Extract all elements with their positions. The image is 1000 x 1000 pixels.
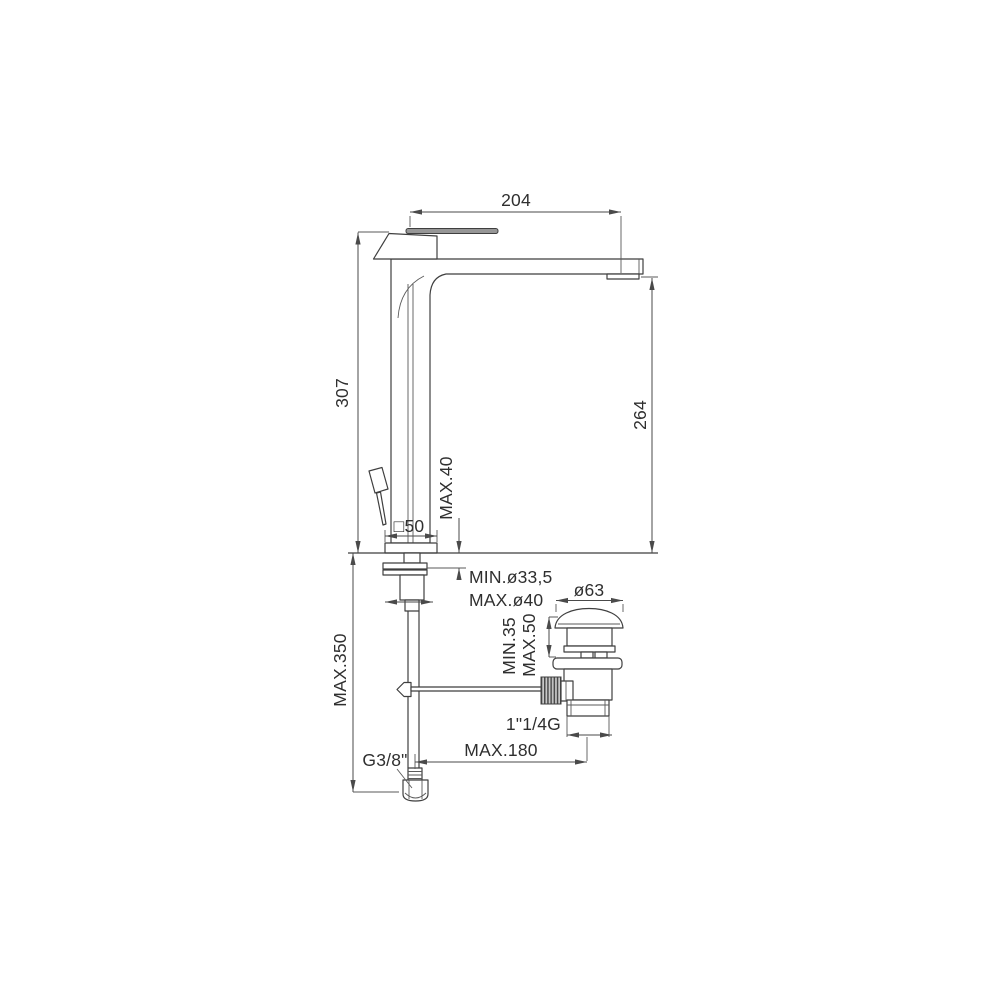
- waste-tab-left: [581, 652, 593, 658]
- waste-neck: [567, 628, 612, 646]
- threaded-shank: [404, 553, 420, 563]
- handle-lever-bar: [406, 229, 498, 234]
- clamp-washer-bottom: [383, 570, 427, 575]
- rod-clamp: [397, 683, 411, 697]
- rod-bar: [411, 687, 542, 691]
- dim-label-waste-offset: MAX.180: [464, 740, 537, 760]
- dim-waste-cap: ø63: [556, 580, 623, 612]
- clamp-washer-top: [383, 563, 427, 569]
- dim-label-total-height: 307: [332, 378, 352, 408]
- dim-label-base-square: □50: [394, 516, 425, 536]
- dim-label-hole-min: MIN.ø33,5: [469, 567, 553, 587]
- dim-label-deck-thickness: MAX.40: [436, 456, 456, 520]
- waste-flange: [553, 658, 622, 669]
- waste-tailpiece: [567, 700, 609, 716]
- knurled-nut: [541, 677, 561, 704]
- dim-label-hose-length: MAX.350: [330, 633, 350, 706]
- dim-label-waste-cap: ø63: [574, 580, 605, 600]
- dim-label-waste-max: MAX.50: [519, 613, 539, 677]
- dim-waste-offset: MAX.180: [415, 740, 587, 769]
- aerator: [607, 274, 639, 279]
- hose-end-fitting: [403, 768, 428, 801]
- technical-drawing-canvas: 204 307 264 MAX.40 □50 MIN.ø33,5 MAX.ø40…: [0, 0, 1000, 1000]
- dim-deck-thickness: MAX.40: [427, 456, 466, 579]
- waste-tab-right: [595, 652, 607, 658]
- drawing-svg: 204 307 264 MAX.40 □50 MIN.ø33,5 MAX.ø40…: [0, 0, 1000, 1000]
- mounting-block: [400, 575, 424, 600]
- open-handle-profile: [369, 468, 388, 526]
- dim-label-spout-reach: 204: [501, 190, 531, 210]
- handle-rod: [377, 492, 387, 525]
- dim-label-outlet-height: 264: [630, 400, 650, 430]
- drain-assembly: [541, 609, 623, 717]
- faucet-silhouette: [391, 259, 643, 543]
- handle-knob: [369, 468, 388, 494]
- dim-label-supply-thread: G3/8": [362, 750, 407, 770]
- dim-outlet-height: 264: [630, 277, 658, 553]
- faucet-body: [374, 229, 644, 544]
- waste-band: [564, 646, 615, 652]
- waste-cap-dome: [555, 609, 623, 629]
- dim-label-hole-max: MAX.ø40: [469, 590, 543, 610]
- base-plate: [385, 543, 437, 553]
- dim-label-waste-thread: 1"1/4G: [506, 714, 561, 734]
- dim-waste-clamp-range: MIN.35 MAX.50: [499, 613, 558, 677]
- dim-label-waste-min: MIN.35: [499, 617, 519, 675]
- rod-inlet-cylinder: [561, 681, 573, 701]
- mixer-head: [374, 234, 438, 260]
